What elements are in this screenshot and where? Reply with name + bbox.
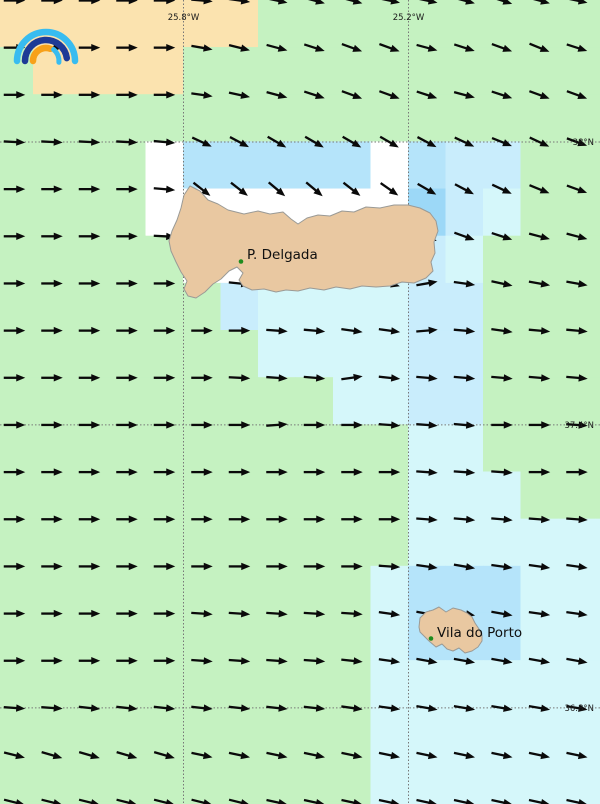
weather-cell xyxy=(0,424,33,473)
weather-cell xyxy=(108,0,146,48)
weather-cell xyxy=(333,377,371,426)
weather-cell xyxy=(108,330,146,379)
weather-cell xyxy=(183,660,221,709)
weather-cell xyxy=(183,566,221,615)
weather-cell xyxy=(558,519,596,568)
latitude-label: 36.8°N xyxy=(564,704,594,714)
weather-cell xyxy=(521,424,559,473)
weather-cell xyxy=(146,0,184,48)
weather-cell xyxy=(483,283,521,332)
weather-cell xyxy=(33,519,71,568)
weather-cell xyxy=(408,330,446,379)
weather-cell xyxy=(521,47,559,96)
weather-cell xyxy=(596,472,600,521)
weather-cell xyxy=(146,519,184,568)
weather-cell xyxy=(0,472,33,521)
weather-cell xyxy=(296,330,334,379)
weather-cell xyxy=(558,566,596,615)
weather-cell xyxy=(558,283,596,332)
weather-cell xyxy=(446,660,484,709)
weather-cell xyxy=(221,424,259,473)
weather-cell xyxy=(108,566,146,615)
weather-cell xyxy=(33,141,71,190)
weather-cell xyxy=(558,660,596,709)
weather-cell xyxy=(0,660,33,709)
weather-cell xyxy=(333,519,371,568)
weather-cell xyxy=(521,330,559,379)
weather-cell xyxy=(258,424,296,473)
weather-cell xyxy=(108,613,146,662)
weather-cell xyxy=(33,424,71,473)
weather-cell xyxy=(558,613,596,662)
weather-cell xyxy=(33,283,71,332)
weather-cell xyxy=(596,47,600,96)
weather-cell xyxy=(33,754,71,803)
weather-cell xyxy=(446,330,484,379)
weather-cell xyxy=(483,330,521,379)
weather-cell xyxy=(221,47,259,96)
latitude-label: 38°N xyxy=(573,138,594,148)
weather-cell xyxy=(258,377,296,426)
weather-cell xyxy=(558,707,596,756)
weather-cell xyxy=(258,47,296,96)
weather-cell xyxy=(183,472,221,521)
weather-cell xyxy=(183,519,221,568)
weather-cell xyxy=(333,141,371,190)
weather-cell xyxy=(371,754,409,803)
weather-cell xyxy=(483,47,521,96)
weather-cell xyxy=(183,141,221,190)
weather-cell xyxy=(596,189,600,238)
weather-cell xyxy=(71,283,109,332)
weather-cell xyxy=(333,660,371,709)
weather-cell xyxy=(408,94,446,143)
weather-cell xyxy=(558,472,596,521)
weather-cell xyxy=(71,566,109,615)
weather-cell xyxy=(33,566,71,615)
weather-cell xyxy=(108,47,146,96)
weather-cell xyxy=(296,754,334,803)
weather-cell xyxy=(33,377,71,426)
weather-cell xyxy=(108,472,146,521)
weather-cell xyxy=(371,660,409,709)
weather-cell xyxy=(108,424,146,473)
weather-cell xyxy=(333,424,371,473)
weather-cell xyxy=(296,424,334,473)
weather-cell xyxy=(33,94,71,143)
weather-cell xyxy=(596,566,600,615)
weather-cell xyxy=(521,472,559,521)
weather-cell xyxy=(483,660,521,709)
weather-cell xyxy=(558,47,596,96)
weather-cell xyxy=(371,0,409,48)
weather-cell xyxy=(521,613,559,662)
weather-cell xyxy=(33,707,71,756)
weather-cell xyxy=(71,94,109,143)
weather-cell xyxy=(146,613,184,662)
weather-cell xyxy=(33,330,71,379)
weather-cell xyxy=(0,141,33,190)
weather-cell xyxy=(596,613,600,662)
weather-cell xyxy=(71,236,109,285)
weather-cell xyxy=(483,236,521,285)
weather-cell xyxy=(258,141,296,190)
weather-cell xyxy=(408,519,446,568)
weather-cell xyxy=(296,0,334,48)
weather-cell xyxy=(483,189,521,238)
weather-cell xyxy=(371,283,409,332)
longitude-label: 25.8°W xyxy=(168,13,200,23)
weather-cell xyxy=(296,707,334,756)
weather-cell xyxy=(108,141,146,190)
weather-cell xyxy=(146,141,184,190)
weather-cell xyxy=(71,613,109,662)
wind-map[interactable]: P. DelgadaVila do Porto 25.8°W25.2°W38°N… xyxy=(0,0,600,804)
weather-cell xyxy=(558,189,596,238)
weather-cell xyxy=(146,754,184,803)
weather-cell xyxy=(371,613,409,662)
weather-cell xyxy=(183,754,221,803)
weather-cell xyxy=(371,519,409,568)
weather-cell xyxy=(0,754,33,803)
weather-cell xyxy=(333,330,371,379)
weather-cell xyxy=(596,236,600,285)
weather-cell xyxy=(333,47,371,96)
weather-cell xyxy=(0,330,33,379)
weather-cell xyxy=(71,377,109,426)
weather-cell xyxy=(221,377,259,426)
weather-cell xyxy=(596,377,600,426)
weather-cell xyxy=(146,566,184,615)
weather-cell xyxy=(33,613,71,662)
weather-cell xyxy=(371,141,409,190)
weather-cell xyxy=(183,94,221,143)
weather-cell xyxy=(258,660,296,709)
weather-cell xyxy=(521,566,559,615)
weather-cell xyxy=(371,47,409,96)
weather-cell xyxy=(558,0,596,48)
weather-cell xyxy=(221,707,259,756)
city-label: P. Delgada xyxy=(247,247,318,263)
weather-cell xyxy=(371,472,409,521)
weather-cell xyxy=(108,377,146,426)
weather-cell xyxy=(446,707,484,756)
weather-cell xyxy=(108,283,146,332)
weather-cell xyxy=(71,754,109,803)
weather-cell xyxy=(258,519,296,568)
weather-cell xyxy=(333,613,371,662)
weather-cell xyxy=(483,754,521,803)
weather-cell xyxy=(333,754,371,803)
weather-cell xyxy=(258,330,296,379)
longitude-label: 25.2°W xyxy=(393,13,425,23)
weather-cell xyxy=(0,566,33,615)
weather-cell xyxy=(558,330,596,379)
weather-cell xyxy=(446,472,484,521)
weather-cell xyxy=(108,754,146,803)
latitude-label: 37.4°N xyxy=(564,421,594,431)
weather-cell xyxy=(258,566,296,615)
weather-cell xyxy=(483,0,521,48)
weather-cell xyxy=(146,47,184,96)
weather-cell xyxy=(183,330,221,379)
weather-cell xyxy=(33,660,71,709)
weather-cell xyxy=(221,613,259,662)
weather-cell xyxy=(558,377,596,426)
weather-cell xyxy=(596,0,600,48)
weather-cell xyxy=(596,660,600,709)
weather-cell xyxy=(333,94,371,143)
weather-cell xyxy=(183,0,221,48)
weather-cell xyxy=(71,660,109,709)
weather-cell xyxy=(108,660,146,709)
weather-cell xyxy=(296,94,334,143)
weather-cell xyxy=(596,283,600,332)
weather-cell xyxy=(446,47,484,96)
weather-cell xyxy=(33,236,71,285)
weather-cell xyxy=(596,707,600,756)
weather-cell xyxy=(146,472,184,521)
weather-cell xyxy=(71,472,109,521)
weather-cell xyxy=(296,377,334,426)
weather-cell xyxy=(446,283,484,332)
weather-cell xyxy=(521,660,559,709)
weather-cell xyxy=(521,0,559,48)
city-label: Vila do Porto xyxy=(437,625,522,641)
weather-cell xyxy=(446,754,484,803)
weather-cell xyxy=(146,424,184,473)
weather-cell xyxy=(446,377,484,426)
weather-cell xyxy=(596,94,600,143)
weather-cell xyxy=(483,519,521,568)
weather-cell xyxy=(408,377,446,426)
weather-cell xyxy=(446,424,484,473)
weather-cell xyxy=(596,519,600,568)
weather-cell xyxy=(258,613,296,662)
weather-cell xyxy=(221,94,259,143)
weather-cell xyxy=(408,754,446,803)
weather-cell xyxy=(258,94,296,143)
weather-cell xyxy=(483,141,521,190)
weather-cell xyxy=(183,377,221,426)
weather-cell xyxy=(296,141,334,190)
weather-cell xyxy=(521,236,559,285)
weather-cell xyxy=(558,94,596,143)
weather-cell xyxy=(108,236,146,285)
weather-cell xyxy=(108,707,146,756)
weather-cell xyxy=(446,236,484,285)
weather-cell xyxy=(146,660,184,709)
weather-cell xyxy=(146,330,184,379)
weather-cell xyxy=(258,472,296,521)
weather-cell xyxy=(108,94,146,143)
weather-cell xyxy=(71,189,109,238)
weather-cell xyxy=(558,236,596,285)
weather-cell xyxy=(483,94,521,143)
weather-cell xyxy=(596,330,600,379)
weather-cell xyxy=(333,0,371,48)
weather-cell xyxy=(521,707,559,756)
weather-cell xyxy=(296,660,334,709)
weather-cell xyxy=(0,519,33,568)
weather-cell xyxy=(296,47,334,96)
weather-cell xyxy=(183,424,221,473)
weather-cell xyxy=(521,754,559,803)
weather-cell xyxy=(408,141,446,190)
weather-cell xyxy=(146,707,184,756)
weather-cell xyxy=(0,283,33,332)
wind-map-screenshot: P. DelgadaVila do Porto 25.8°W25.2°W38°N… xyxy=(0,0,600,804)
weather-cell xyxy=(0,94,33,143)
weather-cell xyxy=(408,424,446,473)
weather-cell xyxy=(258,0,296,48)
weather-cell xyxy=(483,566,521,615)
weather-cell xyxy=(408,283,446,332)
weather-cell xyxy=(0,707,33,756)
weather-cell xyxy=(146,283,184,332)
weather-cell xyxy=(408,47,446,96)
weather-cell xyxy=(333,566,371,615)
weather-cell xyxy=(296,566,334,615)
city-marker-dot[interactable] xyxy=(429,636,434,641)
weather-cell xyxy=(146,377,184,426)
weather-cell xyxy=(596,141,600,190)
weather-cell xyxy=(296,613,334,662)
weather-cell xyxy=(221,754,259,803)
weather-cell xyxy=(521,519,559,568)
weather-cell xyxy=(483,472,521,521)
weather-cell xyxy=(446,519,484,568)
weather-cell xyxy=(521,141,559,190)
weather-cell xyxy=(446,189,484,238)
weather-cell xyxy=(0,613,33,662)
weather-cell xyxy=(521,189,559,238)
weather-cell xyxy=(371,94,409,143)
weather-cell xyxy=(0,236,33,285)
weather-cell xyxy=(558,141,596,190)
weather-cell xyxy=(446,0,484,48)
weather-cell xyxy=(33,472,71,521)
weather-cell xyxy=(146,94,184,143)
weather-cell xyxy=(521,283,559,332)
weather-cell xyxy=(483,424,521,473)
weather-cell xyxy=(558,754,596,803)
weather-cell xyxy=(521,377,559,426)
weather-cell xyxy=(596,424,600,473)
weather-cell xyxy=(296,519,334,568)
weather-cell xyxy=(408,472,446,521)
weather-cell xyxy=(183,707,221,756)
weather-cell xyxy=(408,660,446,709)
weather-cell xyxy=(408,566,446,615)
weather-cell xyxy=(408,707,446,756)
weather-cell xyxy=(71,330,109,379)
weather-cell xyxy=(221,0,259,48)
weather-cell xyxy=(558,424,596,473)
weather-cell xyxy=(108,189,146,238)
weather-cell xyxy=(221,472,259,521)
weather-cell xyxy=(221,141,259,190)
weather-cell xyxy=(221,330,259,379)
weather-cell-layer xyxy=(0,0,600,804)
weather-cell xyxy=(483,707,521,756)
weather-cell xyxy=(108,519,146,568)
weather-cell xyxy=(596,754,600,803)
weather-cell xyxy=(371,377,409,426)
weather-cell xyxy=(71,424,109,473)
weather-cell xyxy=(258,707,296,756)
weather-cell xyxy=(258,754,296,803)
weather-cell xyxy=(371,424,409,473)
weather-cell xyxy=(333,283,371,332)
weather-cell xyxy=(0,377,33,426)
weather-cell xyxy=(333,472,371,521)
weather-cell xyxy=(408,0,446,48)
weather-cell xyxy=(371,707,409,756)
weather-cell xyxy=(371,566,409,615)
weather-cell xyxy=(221,660,259,709)
weather-cell xyxy=(483,377,521,426)
weather-cell xyxy=(71,0,109,48)
weather-cell xyxy=(183,613,221,662)
weather-cell xyxy=(71,707,109,756)
weather-cell xyxy=(71,141,109,190)
weather-cell xyxy=(183,47,221,96)
weather-cell xyxy=(0,189,33,238)
weather-cell xyxy=(33,189,71,238)
weather-cell xyxy=(296,472,334,521)
weather-cell xyxy=(333,707,371,756)
weather-cell xyxy=(71,519,109,568)
city-marker-dot[interactable] xyxy=(239,259,244,264)
weather-cell xyxy=(371,330,409,379)
weather-cell xyxy=(446,566,484,615)
weather-cell xyxy=(221,566,259,615)
weather-cell xyxy=(446,94,484,143)
weather-cell xyxy=(221,519,259,568)
weather-cell xyxy=(446,141,484,190)
weather-cell xyxy=(521,94,559,143)
